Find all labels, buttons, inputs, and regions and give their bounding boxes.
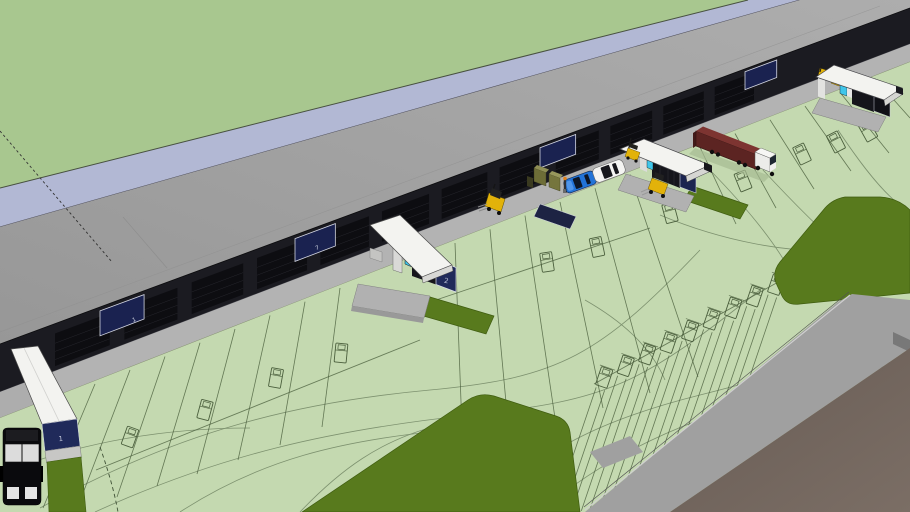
scene-svg: 1 7: [0, 0, 910, 512]
trailer-rear: [693, 131, 696, 148]
grass-island: [47, 457, 86, 512]
black-van: [0, 428, 43, 505]
3d-model-viewport[interactable]: 1 7: [0, 0, 910, 512]
gatehouse-1-number: 1: [58, 435, 63, 443]
